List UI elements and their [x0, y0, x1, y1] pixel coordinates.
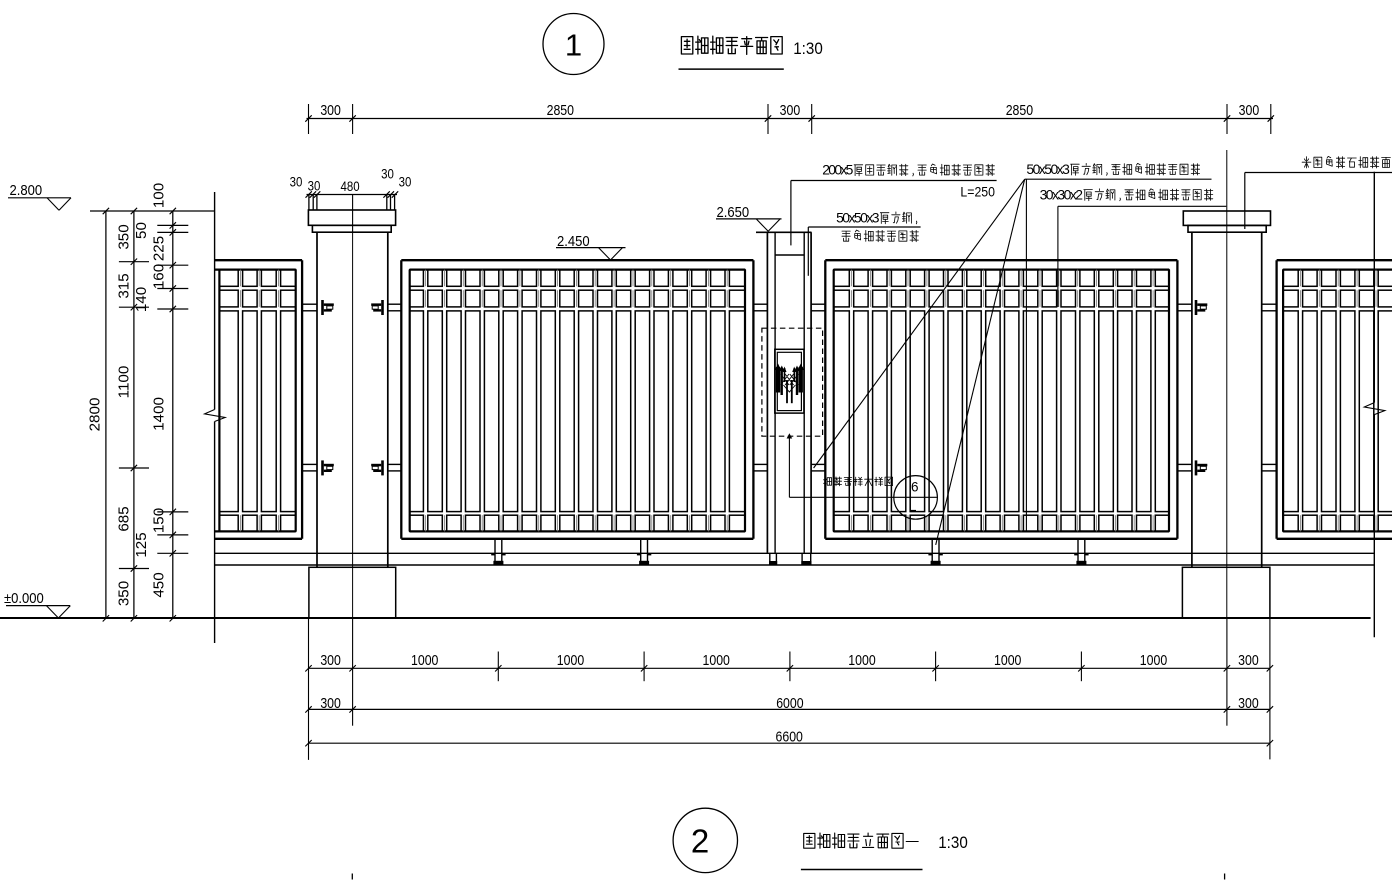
svg-text:1000: 1000 [994, 652, 1021, 668]
svg-text:2.800: 2.800 [10, 182, 43, 198]
svg-text:2850: 2850 [1006, 102, 1033, 118]
svg-text:30x30x2: 30x30x2 [1040, 187, 1084, 203]
svg-text:1000: 1000 [411, 652, 438, 668]
svg-text:±0.000: ±0.000 [4, 590, 44, 606]
svg-text:6600: 6600 [776, 729, 803, 745]
svg-text:125: 125 [133, 532, 150, 557]
svg-text:2850: 2850 [547, 102, 574, 118]
svg-text:300: 300 [780, 102, 801, 118]
svg-text:160: 160 [151, 264, 168, 289]
svg-text:350: 350 [116, 581, 133, 606]
svg-text:30: 30 [290, 175, 303, 190]
svg-text:140: 140 [133, 287, 150, 312]
svg-text:300: 300 [320, 695, 341, 711]
svg-text:2.450: 2.450 [557, 233, 590, 249]
svg-text:2: 2 [691, 823, 709, 860]
svg-text:450: 450 [151, 572, 168, 597]
svg-text:200x5: 200x5 [822, 162, 853, 178]
svg-text:1000: 1000 [703, 652, 730, 668]
svg-text:1: 1 [565, 28, 582, 63]
svg-text:300: 300 [320, 652, 341, 668]
svg-text:480: 480 [340, 179, 359, 194]
svg-text:30: 30 [381, 167, 394, 182]
svg-text:300: 300 [1238, 695, 1259, 711]
svg-text:1000: 1000 [848, 652, 875, 668]
svg-text:1:30: 1:30 [938, 834, 968, 852]
svg-text:50: 50 [133, 222, 150, 239]
svg-text:1:30: 1:30 [793, 40, 823, 58]
svg-text:225: 225 [151, 236, 168, 261]
svg-text:315: 315 [116, 273, 133, 298]
svg-text:1000: 1000 [557, 652, 584, 668]
svg-text:300: 300 [1239, 102, 1260, 118]
svg-text:300: 300 [1238, 652, 1259, 668]
svg-text:L=250: L=250 [960, 184, 995, 200]
svg-text:1400: 1400 [151, 397, 168, 431]
svg-text:50x50x3: 50x50x3 [836, 210, 880, 226]
svg-text:150: 150 [151, 508, 168, 533]
svg-text:1000: 1000 [1140, 652, 1167, 668]
svg-text:2.650: 2.650 [717, 204, 750, 220]
svg-text:50x50x3: 50x50x3 [1026, 161, 1070, 177]
svg-text:2800: 2800 [87, 398, 104, 432]
svg-text:6000: 6000 [776, 695, 803, 711]
svg-text:30: 30 [308, 179, 321, 194]
svg-text:1100: 1100 [116, 366, 133, 399]
svg-text:350: 350 [116, 224, 133, 249]
svg-text:300: 300 [320, 102, 341, 118]
svg-text:685: 685 [116, 506, 133, 531]
svg-text:100: 100 [151, 183, 168, 208]
svg-text:6: 6 [911, 480, 919, 495]
svg-text:30: 30 [399, 174, 412, 189]
